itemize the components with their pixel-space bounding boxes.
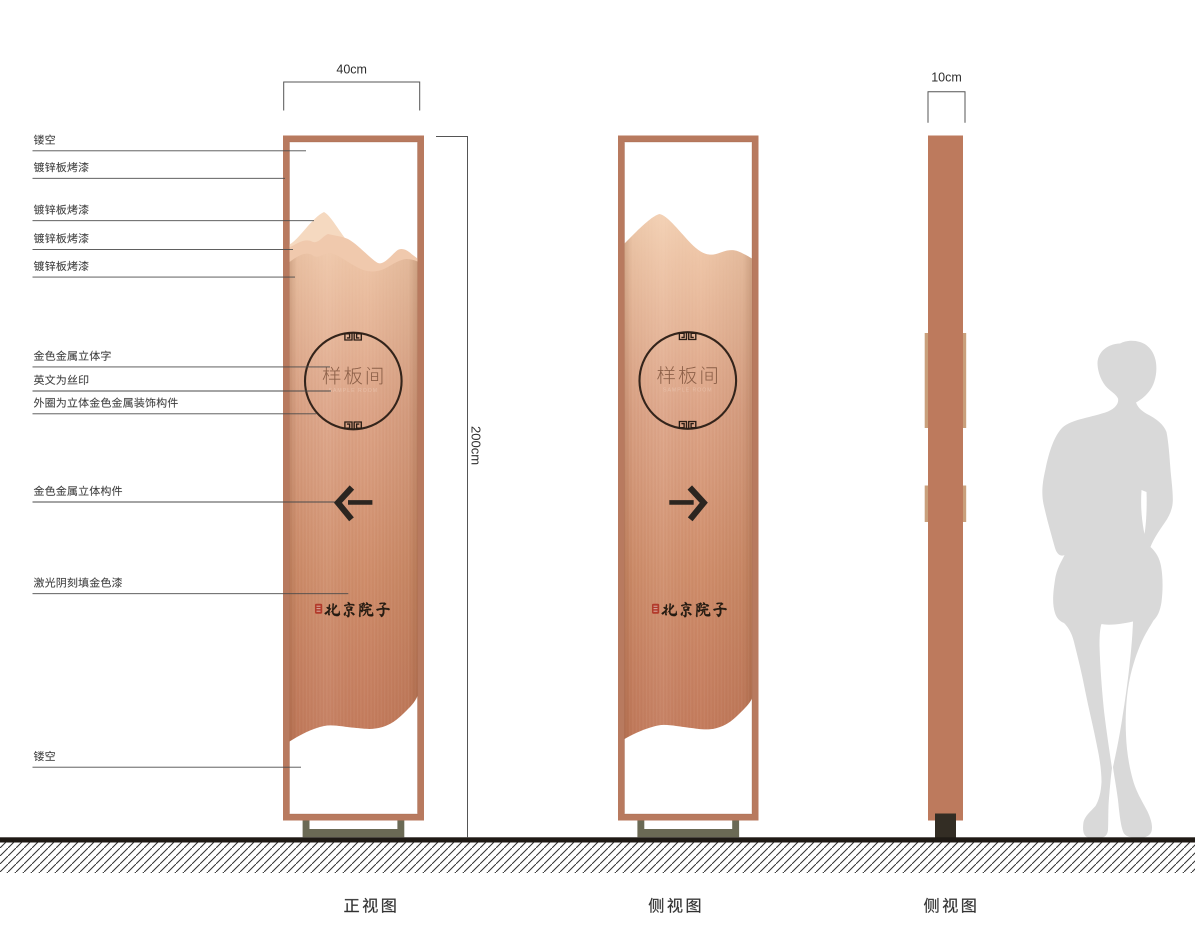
svg-text:200cm: 200cm xyxy=(469,426,484,465)
svg-text:10cm: 10cm xyxy=(931,71,962,85)
svg-text:40cm: 40cm xyxy=(336,63,367,77)
